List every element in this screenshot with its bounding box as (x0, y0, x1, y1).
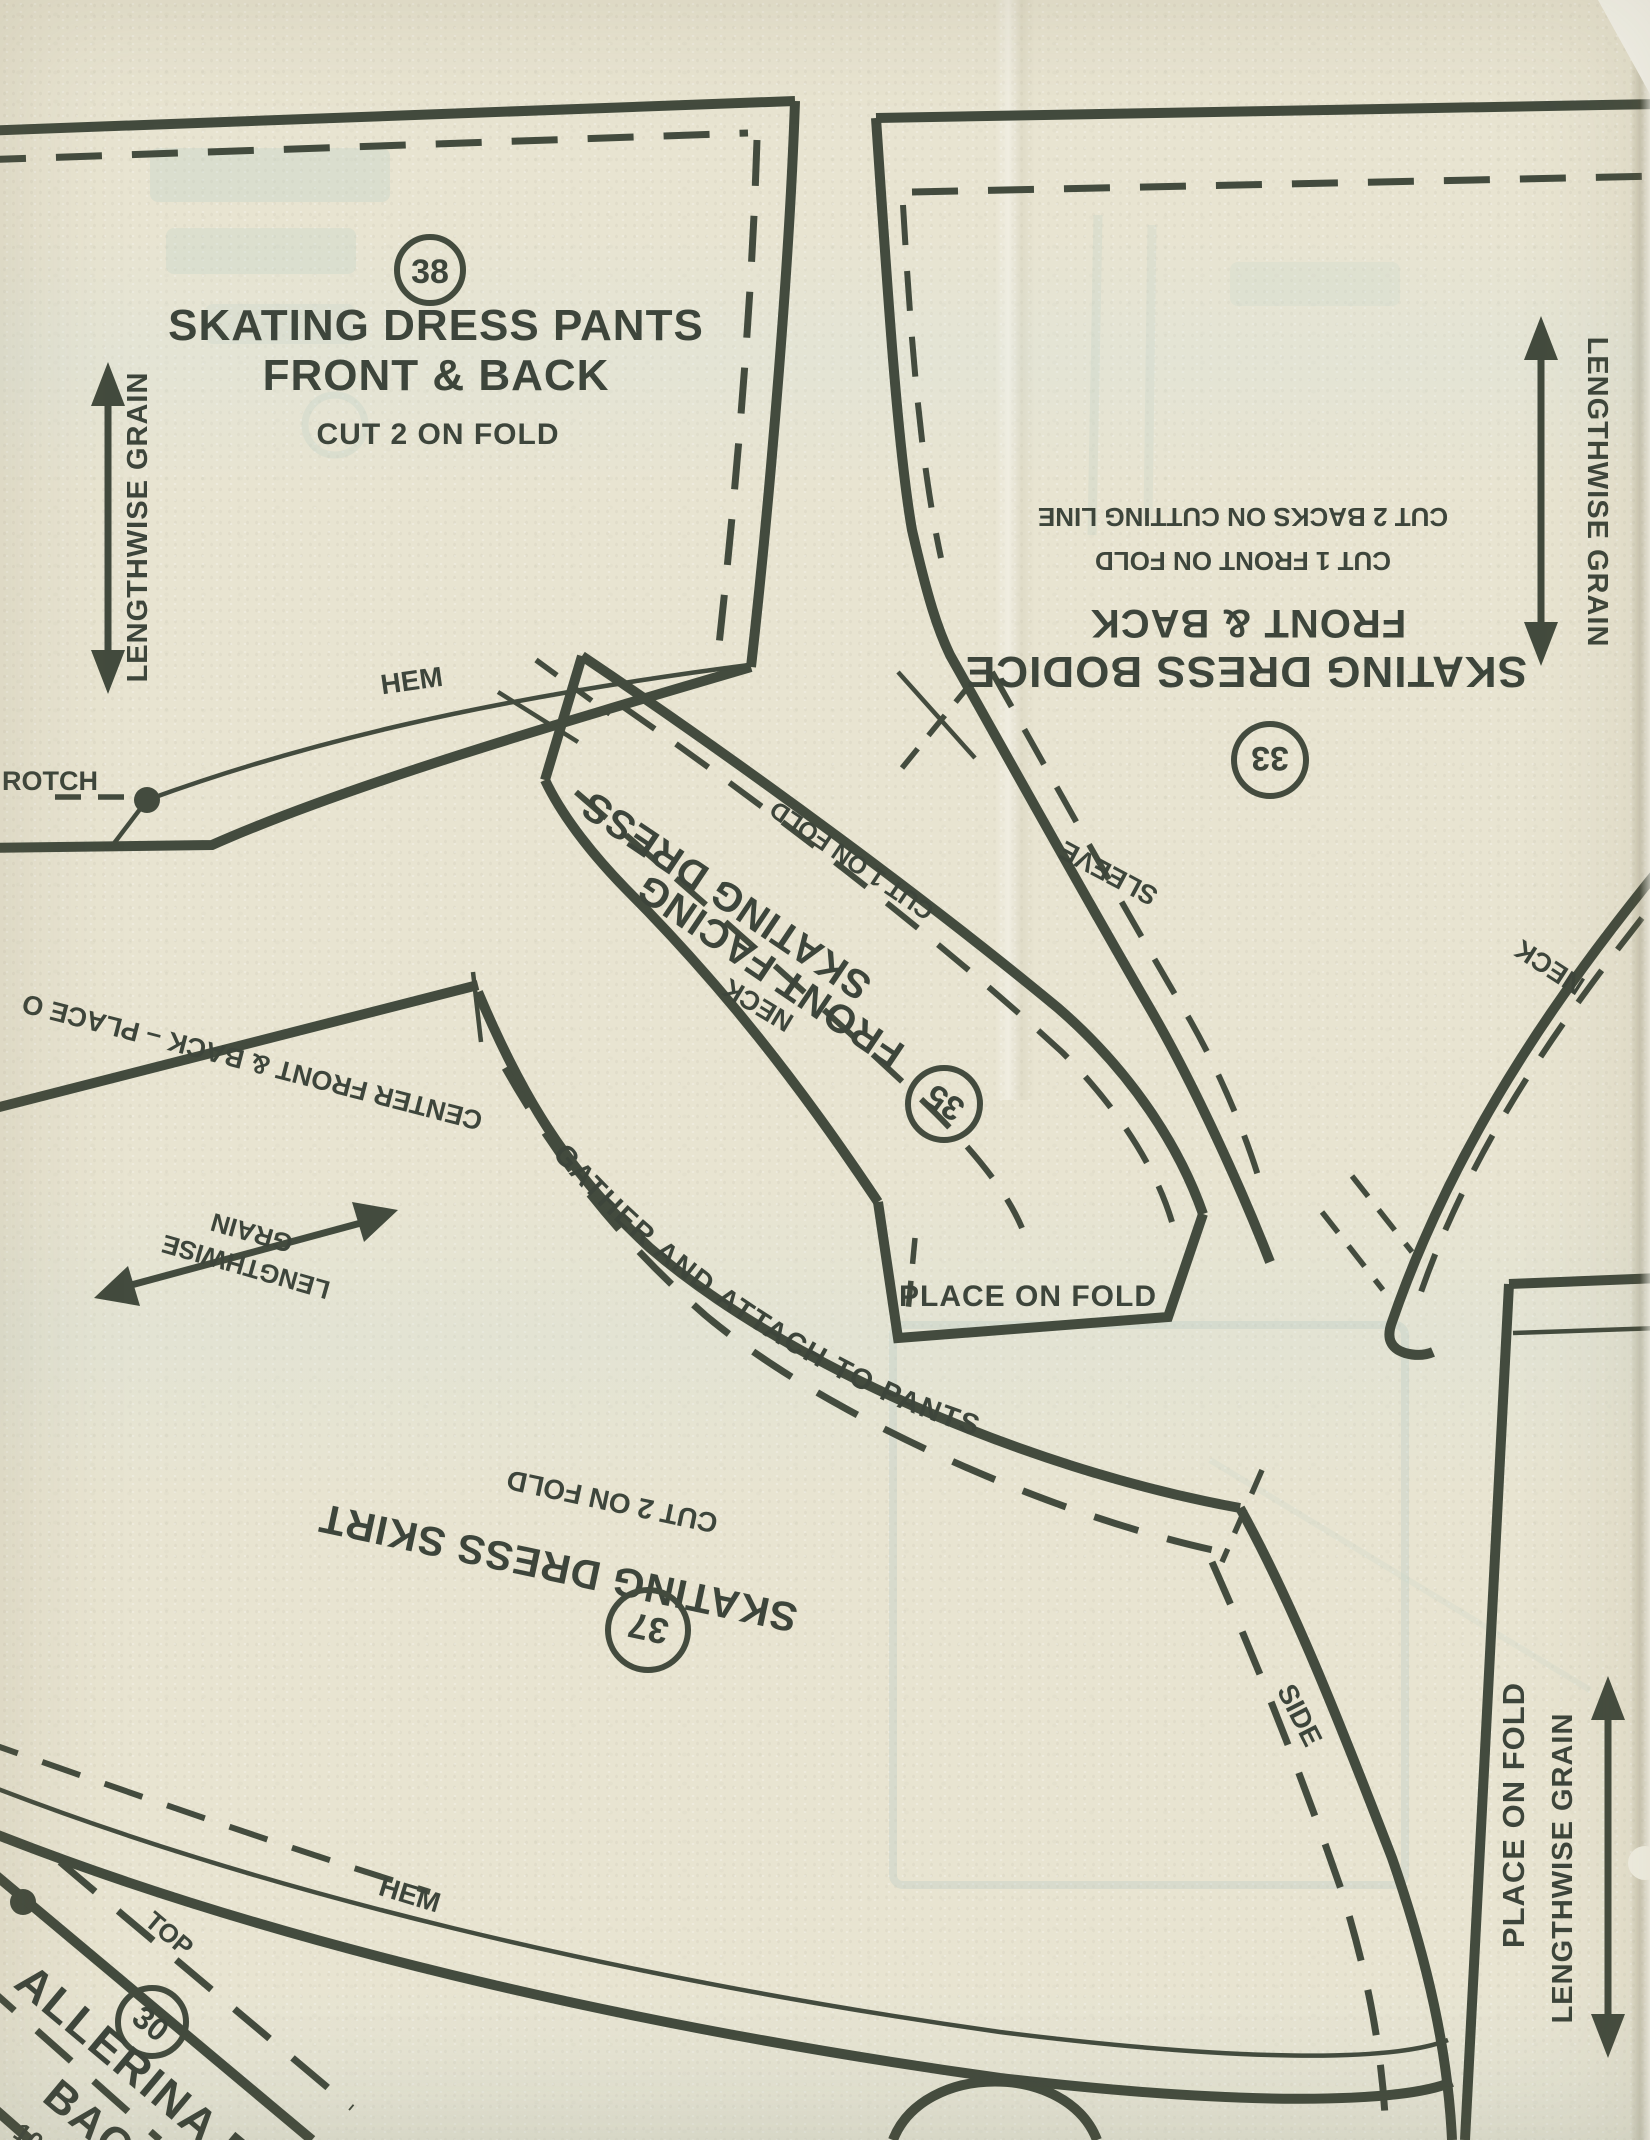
ghost-line (1210, 1460, 1590, 1690)
pants-right-cut-line (751, 101, 795, 667)
ghost-blob (150, 148, 390, 202)
foldpiece-grain-label: LENGTHWISE GRAIN (1547, 1713, 1579, 2024)
ballerina-top-label: TOP (139, 1905, 199, 1962)
bodice-sleeve-seam-dashes (992, 672, 1264, 1196)
grain-arrow-down-icon (1591, 2014, 1625, 2058)
skirt-cut-note: CUT 2 ON FOLD (504, 1464, 720, 1539)
pants-title-line2: FRONT & BACK (263, 351, 610, 400)
bodice-number: 33 (1251, 739, 1289, 777)
bodice-top-seam-dashes (912, 176, 1650, 192)
piece-fold-corner: PLACE ON FOLD LENGTHWISE GRAIN (1465, 1278, 1650, 2140)
pants-grain-label: LENGTHWISE GRAIN (122, 372, 154, 683)
facing-number: 35 (919, 1076, 971, 1128)
grain-arrow-up-icon (1524, 316, 1558, 360)
bodice-cut-note1: CUT 1 FRONT ON FOLD (1095, 546, 1391, 576)
pants-cut-note: CUT 2 ON FOLD (317, 418, 560, 451)
pants-hem-fold-line (147, 665, 749, 800)
foldpiece-fold-label: PLACE ON FOLD (1496, 1682, 1531, 1948)
gather-text-path (548, 1150, 1160, 1478)
facing-cut-note: CUT 1 ON FOLD (765, 795, 940, 925)
pants-number: 38 (411, 253, 449, 291)
ghost-blob (166, 228, 356, 274)
facing-fold-label: PLACE ON FOLD (899, 1280, 1157, 1313)
grain-arrow-left-icon (94, 1266, 140, 1306)
bodice-grainline-arrow: LENGTHWISE GRAIN (1524, 316, 1613, 666)
facing-title-line1: SKATING DRESS (574, 782, 880, 1008)
facing-fold-corner-cut-line (878, 1202, 1203, 1338)
grain-arrow-up-icon (1591, 1676, 1625, 1720)
grain-arrow-up-icon (91, 362, 125, 406)
skirt-hem-fold-line (0, 1782, 1448, 2056)
pants-title-line1: SKATING DRESS PANTS (168, 301, 704, 350)
piece-ballerina: TOP 30 ALLERINA BO BACK 10 (0, 1862, 352, 2140)
facing-upper-seam-dashes (622, 706, 1172, 1222)
skirt-title: SKATING DRESS SKIRT (315, 1495, 801, 1641)
crotch-dot (134, 787, 160, 813)
foldpiece-fold-guide-line (1513, 1328, 1650, 1333)
bodice-shoulder-dashes (1322, 1212, 1383, 1290)
grain-arrow-down-icon (1524, 622, 1558, 666)
piece-facing: SKATING DRESS FRONT FACING CUT 1 ON FOLD… (498, 656, 1203, 1338)
bottom-piece-arc-line (893, 2082, 1097, 2140)
pants-side-seam-dashes (719, 140, 757, 645)
skirt-waist-cut-line (478, 992, 1240, 1508)
pants-grainline-arrow: LENGTHWISE GRAIN (91, 362, 154, 694)
bodice-shoulder-dashes (1352, 1176, 1412, 1252)
piece-skirt: CENTER FRONT & BACK – PLACE O GATHER AND… (0, 972, 1452, 2140)
skirt-grainline-arrow: GRAIN LENGTHWISE (94, 1202, 398, 1306)
crotch-label: ROTCH (2, 766, 98, 796)
bodice-cut-note2: CUT 2 BACKS ON CUTTING LINE (1038, 502, 1448, 532)
pants-hem-label: HEM (379, 661, 445, 700)
ghost-line (1148, 225, 1152, 520)
grain-arrow-down-icon (91, 650, 125, 694)
ghost-line (1092, 215, 1098, 535)
bodice-grain-label: LENGTHWISE GRAIN (1581, 337, 1613, 648)
bodice-top-cut-line (876, 104, 1650, 118)
ghost-blob (1230, 262, 1400, 306)
bodice-title: SKATING DRESS BODICE (965, 647, 1527, 696)
foldpiece-top-cut-line (1509, 1278, 1650, 1284)
pants-top-cut-line (0, 101, 795, 131)
skirt-center-label: CENTER FRONT & BACK – PLACE O (19, 988, 485, 1136)
foldpiece-grainline-arrow: LENGTHWISE GRAIN (1547, 1676, 1625, 2058)
skirt-side-cut-line (1240, 1508, 1452, 2140)
pattern-sheet-svg: 38 SKATING DRESS PANTS FRONT & BACK CUT … (0, 0, 1650, 2140)
bodice-notch-dashes (902, 682, 972, 768)
grain-arrow-right-icon (352, 1202, 398, 1242)
skirt-number: 37 (624, 1604, 672, 1652)
piece-pants: 38 SKATING DRESS PANTS FRONT & BACK CUT … (0, 101, 795, 848)
bodice-subtitle: FRONT & BACK (1090, 601, 1406, 645)
